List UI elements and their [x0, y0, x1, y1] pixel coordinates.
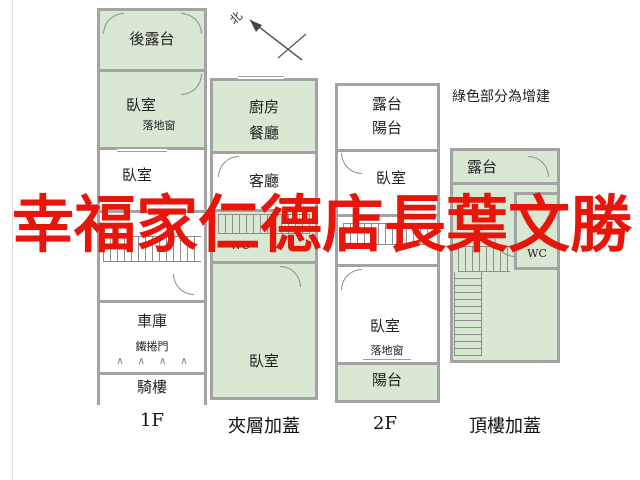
floor-label-1f: 1F: [140, 412, 164, 430]
room-label-rear-terrace: 後露台: [129, 32, 174, 47]
floor-plan-page: { "watermark": { "text": "幸福家仁德店長葉文勝", "…: [0, 0, 640, 480]
window-icon: [117, 148, 167, 152]
window-icon: [363, 359, 411, 363]
room-label-terrace: 露台: [467, 160, 497, 175]
floor-label-2f: 2F: [373, 415, 397, 433]
room-label-dining: 餐廳: [249, 126, 279, 141]
room-label-bedroom: 臥室: [376, 171, 406, 186]
room-label-garage: 車庫: [137, 314, 167, 329]
room-label-bedroom: 臥室: [370, 319, 400, 334]
room-label-living: 客廳: [249, 174, 279, 189]
room-label-bedroom: 臥室: [122, 168, 152, 183]
room-label-bedroom: 臥室: [249, 354, 279, 369]
room-label-terrace: 露台: [372, 97, 402, 112]
roller-door-icon: ∧∧∧∧: [116, 357, 201, 367]
north-compass: 北: [228, 6, 312, 70]
label-floor-window: 落地窗: [143, 120, 176, 131]
room-label-kitchen: 廚房: [249, 100, 279, 115]
room-label-balcony: 陽台: [372, 373, 402, 388]
room-label-balcony: 陽台: [372, 121, 402, 136]
floor-label-rooftop: 頂樓加蓋: [469, 418, 541, 436]
room-label-bedroom: 臥室: [126, 98, 156, 113]
window-icon: [238, 76, 284, 80]
room-label-arcade: 騎樓: [137, 380, 167, 395]
room-kitchen-dining: [210, 78, 318, 154]
label-floor-window: 落地窗: [371, 345, 404, 356]
floor-label-mezzanine: 夾層加蓋: [228, 418, 300, 436]
agent-watermark: 幸福家仁德店長葉文勝: [12, 194, 638, 256]
stairs-icon: [454, 272, 482, 356]
room-terrace-balcony: [335, 83, 440, 152]
green-addition-note: 綠色部分為增建: [452, 90, 550, 104]
label-roller-door: 鐵捲門: [136, 341, 169, 352]
room-bedroom: [210, 261, 318, 400]
